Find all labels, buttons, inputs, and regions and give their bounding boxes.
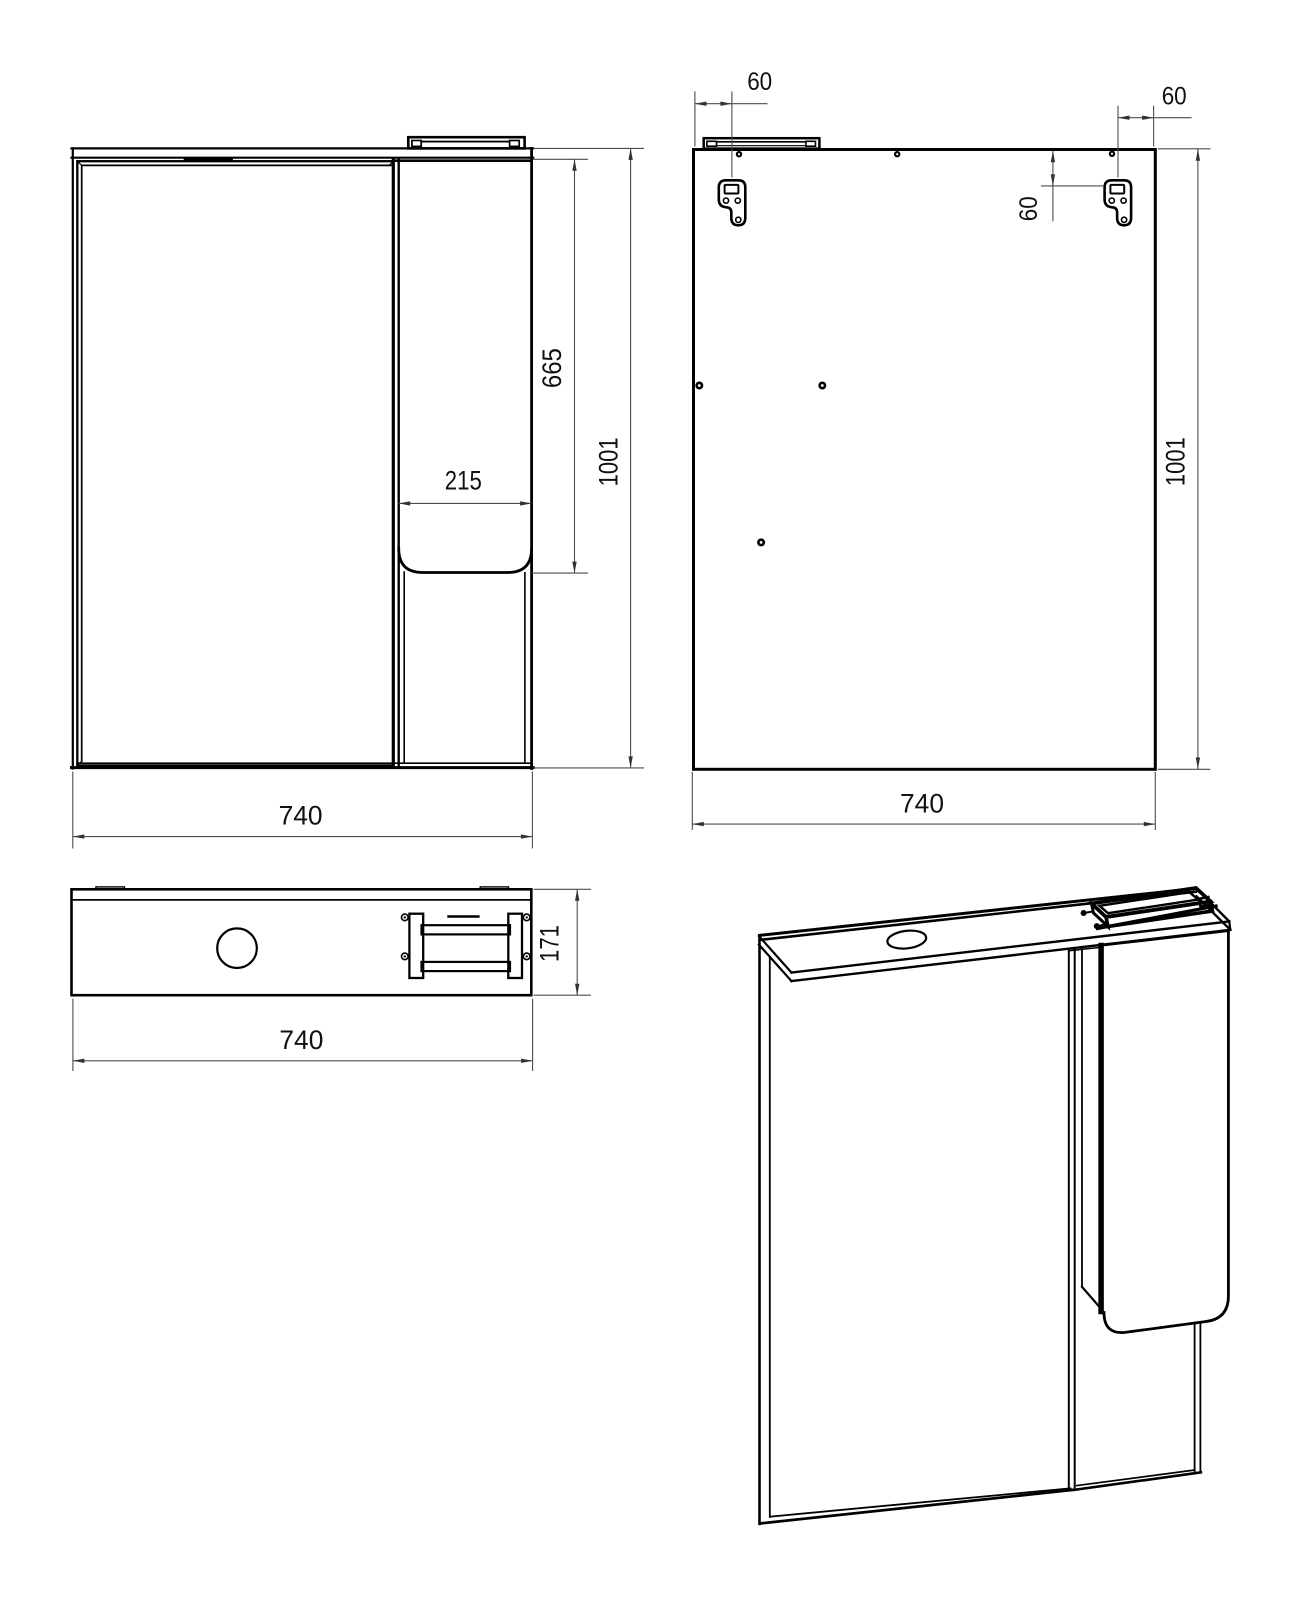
svg-text:1001: 1001: [1160, 437, 1190, 486]
svg-text:60: 60: [747, 68, 772, 96]
svg-text:1001: 1001: [593, 437, 623, 486]
svg-text:171: 171: [535, 925, 565, 962]
svg-text:60: 60: [1162, 82, 1187, 110]
svg-text:665: 665: [537, 348, 567, 388]
svg-text:740: 740: [279, 1025, 323, 1055]
svg-text:740: 740: [900, 789, 944, 819]
svg-text:60: 60: [1015, 196, 1043, 221]
svg-text:215: 215: [445, 466, 482, 496]
svg-text:740: 740: [279, 801, 323, 831]
